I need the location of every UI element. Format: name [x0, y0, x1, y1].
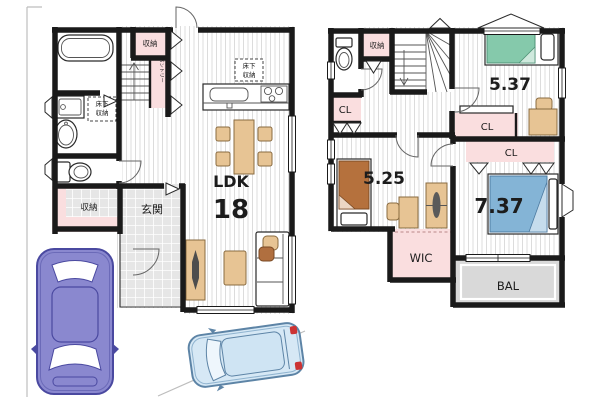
bay-window-737: [562, 184, 573, 217]
car-rear-window: [52, 261, 98, 283]
bedroom537-size-label: 5.37: [489, 75, 531, 95]
entrance-label: 玄関: [141, 202, 163, 216]
porch-tile: [120, 232, 183, 307]
dining-chair: [216, 127, 230, 141]
desk-chair: [387, 203, 399, 220]
entrance-storage-label: 収納: [80, 202, 97, 213]
dining-chair: [216, 152, 230, 166]
floorplan-drawing: LDK 18 玄関 収納 収納 パントリー 床下 収納 床下 収納: [0, 0, 600, 400]
dresser: [426, 183, 447, 228]
kitchen-counter: [203, 84, 289, 110]
desk: [529, 109, 557, 135]
toilet-2f: [336, 38, 352, 70]
outside-mask: [110, 308, 184, 324]
car-tail-light: [290, 326, 298, 335]
toilet-1f: [56, 162, 91, 182]
pantry-label: パントリー: [158, 57, 164, 82]
tv-board: [186, 240, 205, 300]
bedroom525-size-label: 5.25: [363, 169, 405, 189]
dining-chair: [258, 152, 272, 166]
stair-storage-label: 収納: [143, 38, 158, 48]
pillow: [549, 179, 557, 229]
car-tail-light: [295, 361, 303, 370]
outside-mask: [326, 232, 388, 322]
bay-window-1f: [45, 159, 52, 180]
underfloor-kitchen-label-1: 床下: [243, 61, 257, 70]
bay-window-1f: [45, 97, 52, 118]
closet-left-label: CL: [339, 105, 352, 116]
sofa-cushion: [259, 247, 274, 261]
car-mirror: [113, 344, 119, 355]
floorplan-page: LDK 18 玄関 収納 収納 パントリー 床下 収納 床下 収納: [0, 0, 600, 400]
sofa: [256, 232, 289, 306]
pillow: [341, 213, 367, 225]
washbasin: [56, 96, 84, 118]
car-roof: [221, 331, 286, 377]
roof-vent: [430, 19, 450, 29]
car-purple: [31, 249, 119, 394]
dining-table: [234, 120, 254, 174]
floor2-plan: 5.37 5.25 7.37 CL CL CL 収納 WIC BAL: [326, 14, 573, 323]
wic-label: WIC: [410, 251, 433, 265]
underfloor-wash-label-2: 収納: [96, 108, 109, 117]
washing-machine-pan: [55, 120, 77, 148]
outside-mask: [386, 283, 456, 323]
pillow: [541, 34, 554, 60]
closet-right-label: CL: [505, 148, 518, 159]
ldk-label: LDK: [213, 172, 249, 191]
bathtub: [58, 35, 113, 61]
balcony-label: BAL: [497, 279, 520, 293]
closet-shelf: [460, 106, 513, 113]
hall-storage-label: 収納: [370, 40, 385, 50]
car-mirror: [31, 344, 37, 355]
bay-window-537: [478, 14, 544, 28]
bedroom737-size-label: 7.37: [474, 194, 523, 218]
ldk-size-label: 18: [213, 195, 249, 225]
living-table: [224, 251, 246, 285]
dining-chair: [258, 127, 272, 141]
underfloor-kitchen-label-2: 収納: [243, 70, 256, 79]
desk: [399, 197, 418, 228]
closet-mid-label: CL: [481, 122, 494, 133]
underfloor-wash-label-1: 床下: [96, 99, 110, 108]
dresser-mirror: [433, 192, 441, 218]
car-lightblue: [186, 315, 306, 394]
desk-chair: [536, 98, 552, 110]
back-door-arc: [176, 7, 197, 28]
